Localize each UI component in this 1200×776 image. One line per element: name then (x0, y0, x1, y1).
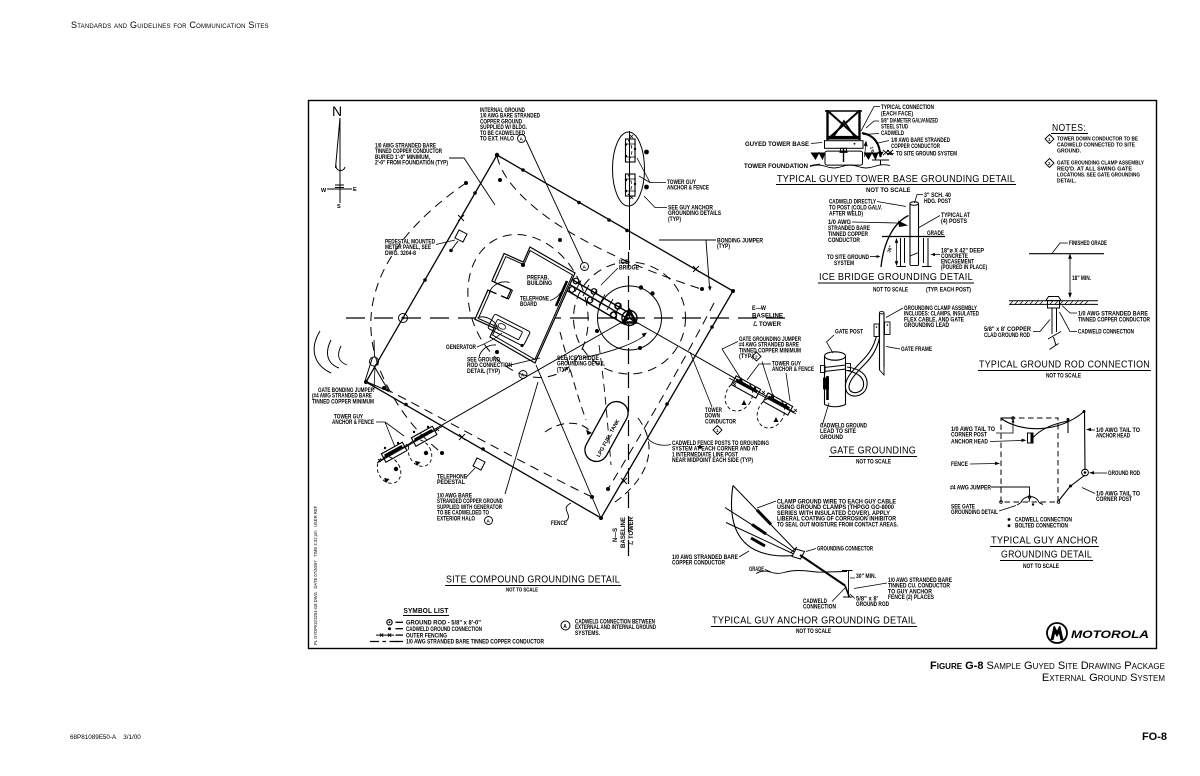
svg-text:TO SITE GROUND SYSTEM: TO SITE GROUND SYSTEM (896, 152, 957, 158)
svg-text:N—S: N—S (613, 528, 619, 542)
svg-text:TINNED COPPER CONDUCTOR: TINNED COPPER CONDUCTOR (1078, 318, 1151, 324)
svg-text:TO EXT. HALO: TO EXT. HALO (480, 137, 514, 143)
svg-text:TOWER FOUNDATION: TOWER FOUNDATION (744, 164, 808, 170)
svg-text:GROUND ROD: GROUND ROD (856, 602, 890, 608)
svg-text:Figure G-8 Sample Guyed Site: Figure G-8 Sample Guyed Site Drawing Pac… (930, 660, 1165, 672)
svg-text:DWG. 3204-8: DWG. 3204-8 (385, 251, 417, 257)
svg-text:GUYED TOWER BASE: GUYED TOWER BASE (745, 142, 809, 148)
svg-text:68P81089E50-A 3/1/00: 68P81089E50-A 3/1/00 (70, 734, 141, 741)
svg-text:ANCHOR HEAD: ANCHOR HEAD (951, 440, 989, 446)
svg-text:MOTOROLA: MOTOROLA (1071, 629, 1149, 641)
svg-text:(EACH FACE): (EACH FACE) (881, 112, 913, 118)
svg-text:BUILDING: BUILDING (527, 281, 552, 287)
svg-text:(TYP.): (TYP.) (739, 354, 754, 360)
svg-text:GRADE: GRADE (749, 567, 764, 573)
svg-text:1/0 AWG STRANDED BARE TINNED C: 1/0 AWG STRANDED BARE TINNED COPPER COND… (406, 640, 545, 646)
svg-text:TINNED COPPER MINIMUM: TINNED COPPER MINIMUM (312, 399, 374, 405)
svg-text:NOTES:: NOTES: (1052, 123, 1086, 134)
svg-text:NOT TO SCALE: NOT TO SCALE (866, 188, 911, 194)
svg-text:30" MIN.: 30" MIN. (856, 574, 876, 580)
svg-text:PL GYDPKG\3204-G8.DWG DATE 0: PL GYDPKG\3204-G8.DWG DATE 07/30/97 TIME… (313, 505, 318, 645)
svg-text:ANCHOR HEAD: ANCHOR HEAD (1096, 434, 1131, 440)
svg-text:NOT TO SCALE: NOT TO SCALE (796, 629, 831, 635)
svg-text:TO SEAL OUT MOISTURE FROM CONT: TO SEAL OUT MOISTURE FROM CONTACT AREAS. (777, 522, 898, 528)
svg-text:(TYP. EACH POST): (TYP. EACH POST) (926, 288, 971, 294)
svg-text:ANCHOR & FENCE: ANCHOR & FENCE (332, 420, 374, 426)
svg-text:GRADE: GRADE (927, 231, 944, 237)
svg-text:GROUNDING DETAIL: GROUNDING DETAIL (1001, 549, 1092, 561)
svg-text:CADWELD CONNECTION: CADWELD CONNECTION (1078, 330, 1134, 336)
svg-text:SITE COMPOUND GROUNDING DETAIL: SITE COMPOUND GROUNDING DETAIL (446, 574, 620, 586)
svg-text:ICE BRIDGE GROUNDING DETAIL: ICE BRIDGE GROUNDING DETAIL (819, 271, 973, 283)
svg-text:FO-8: FO-8 (1142, 731, 1167, 743)
svg-text:GROUNDING CONNECTOR: GROUNDING CONNECTOR (817, 547, 873, 553)
svg-text:DETAIL.: DETAIL. (1057, 179, 1077, 185)
svg-text:External Ground System: External Ground System (1042, 672, 1165, 684)
svg-text:NOT TO SCALE: NOT TO SCALE (873, 288, 908, 294)
svg-text:ℒ TOWER: ℒ TOWER (753, 321, 782, 328)
svg-text:PEDESTAL: PEDESTAL (437, 480, 465, 486)
svg-text:GATE GROUNDING: GATE GROUNDING (830, 445, 916, 457)
svg-text:(TYP): (TYP) (717, 244, 730, 250)
svg-text:A: A (563, 624, 567, 630)
svg-text:GROUND ROD - 5/8" x 8'-0": GROUND ROD - 5/8" x 8'-0" (406, 621, 481, 627)
svg-text:W: W (321, 188, 327, 194)
svg-text:FENCE: FENCE (551, 521, 567, 527)
svg-text:(TYP): (TYP) (557, 367, 570, 373)
svg-text:TYPICAL GUY ANCHOR: TYPICAL GUY ANCHOR (991, 535, 1098, 547)
svg-text:EXTERIOR HALO: EXTERIOR HALO (437, 516, 475, 522)
svg-text:CONDUCTOR: CONDUCTOR (828, 238, 861, 244)
svg-text:S: S (337, 204, 341, 210)
svg-text:CLAD GROUND ROD: CLAD GROUND ROD (984, 333, 1031, 339)
svg-text:COPPER CONDUCTOR: COPPER CONDUCTOR (891, 144, 940, 150)
svg-text:NOT TO SCALE: NOT TO SCALE (856, 460, 891, 466)
svg-text:NOT TO SCALE: NOT TO SCALE (506, 588, 539, 594)
svg-text:FENCE (2) PLACES: FENCE (2) PLACES (888, 595, 934, 601)
svg-text:NOT TO SCALE: NOT TO SCALE (1046, 374, 1081, 380)
svg-text:CORNER POST: CORNER POST (1096, 497, 1132, 503)
svg-text:SYMBOL LIST: SYMBOL LIST (404, 606, 449, 615)
svg-text:STEEL STUD: STEEL STUD (881, 125, 908, 131)
svg-text:2'-0" FROM FOUNDATION (TYP): 2'-0" FROM FOUNDATION (TYP) (375, 161, 448, 167)
svg-text:SYSTEMS.: SYSTEMS. (575, 631, 600, 637)
svg-text:TYPICAL GUYED TOWER BASE GROUN: TYPICAL GUYED TOWER BASE GROUNDING DETAI… (777, 173, 1015, 185)
svg-text:BASELINE: BASELINE (621, 517, 627, 548)
svg-text:GROUND ROD: GROUND ROD (1108, 471, 1141, 477)
svg-text:GROUND: GROUND (820, 435, 844, 441)
svg-text:GATE POST: GATE POST (835, 330, 863, 336)
svg-text:GROUND.: GROUND. (1057, 149, 1082, 155)
svg-text:TYPICAL GROUND ROD CONNECTION: TYPICAL GROUND ROD CONNECTION (979, 359, 1150, 371)
svg-text:AFTER WELD): AFTER WELD) (829, 212, 863, 218)
svg-text:E: E (353, 187, 357, 193)
svg-text:(4) POSTS: (4) POSTS (941, 219, 967, 225)
svg-text:TYPICAL CONNECTION: TYPICAL CONNECTION (881, 105, 934, 111)
svg-text:(TYP): (TYP) (668, 217, 681, 223)
svg-text:CONNECTION: CONNECTION (803, 605, 836, 611)
svg-text:NOT TO SCALE: NOT TO SCALE (1023, 564, 1059, 570)
svg-text:CORNER POST: CORNER POST (951, 433, 987, 439)
svg-text:N: N (332, 103, 342, 119)
svg-text:OUTER FENCING: OUTER FENCING (406, 633, 447, 639)
svg-text:BOLTED CONNECTION: BOLTED CONNECTION (1015, 524, 1068, 530)
svg-text:FINISHED GRADE: FINISHED GRADE (1069, 241, 1107, 247)
svg-text:ANCHOR & FENCE: ANCHOR & FENCE (667, 186, 709, 192)
svg-text:SYSTEM: SYSTEM (834, 261, 854, 267)
svg-text:GATE FRAME: GATE FRAME (901, 347, 932, 353)
svg-text:ℒ TOWER: ℒ TOWER (628, 516, 635, 545)
svg-text:ANCHOR & FENCE: ANCHOR & FENCE (772, 367, 814, 373)
svg-text:TYPICAL GUY ANCHOR GROUNDING D: TYPICAL GUY ANCHOR GROUNDING DETAIL (712, 615, 916, 627)
svg-text:CONDUCTOR: CONDUCTOR (705, 419, 737, 425)
svg-text:CADWELD GROUND CONNECTION: CADWELD GROUND CONNECTION (406, 627, 482, 633)
svg-text:NEAR MIDPOINT EACH SIDE (TYP): NEAR MIDPOINT EACH SIDE (TYP) (672, 458, 753, 464)
svg-text:CADWELD: CADWELD (881, 131, 904, 137)
svg-text:FENCE: FENCE (951, 462, 968, 468)
svg-text:GROUNDING DETAIL: GROUNDING DETAIL (951, 510, 998, 516)
svg-text:#4 AWG JUMPER: #4 AWG JUMPER (950, 486, 992, 492)
svg-text:GENERATOR: GENERATOR (446, 345, 477, 351)
svg-text:18" MIN.: 18" MIN. (1072, 276, 1091, 282)
svg-text:BOARD: BOARD (520, 302, 538, 308)
svg-text:HDG. POST: HDG. POST (924, 199, 951, 205)
svg-text:COPPER CONDUCTOR: COPPER CONDUCTOR (672, 561, 726, 567)
svg-text:Standards and Guidelines for C: Standards and Guidelines for Communicati… (71, 20, 269, 30)
svg-text:DETAIL (TYP): DETAIL (TYP) (467, 369, 500, 375)
svg-text:BASELINE: BASELINE (752, 314, 783, 320)
svg-text:E—W: E—W (752, 306, 766, 312)
svg-text:GROUNDING LEAD: GROUNDING LEAD (904, 323, 950, 329)
svg-text:BRIDGE: BRIDGE (619, 266, 639, 272)
svg-text:CADWELL CONNECTION: CADWELL CONNECTION (1015, 518, 1072, 524)
